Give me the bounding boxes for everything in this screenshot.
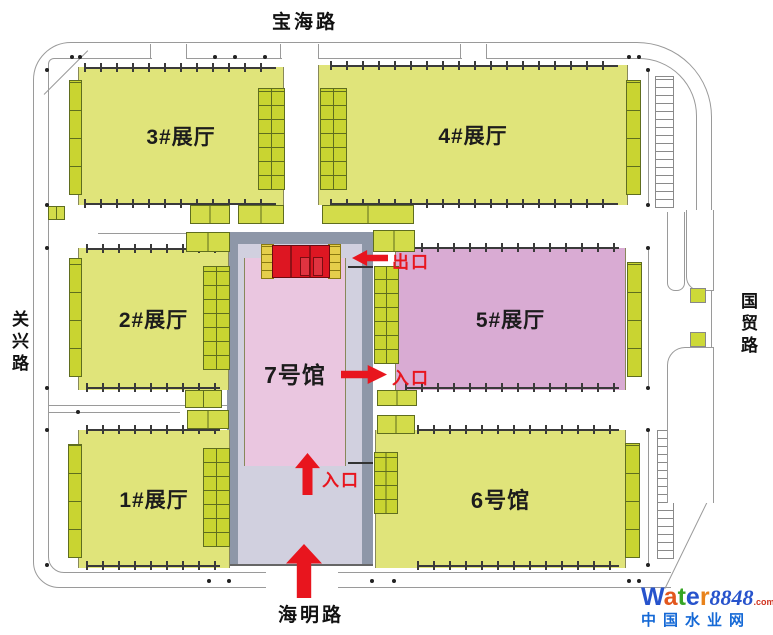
dock-strip xyxy=(626,80,641,195)
road-stub xyxy=(460,44,461,59)
road-junction-dot xyxy=(45,428,49,432)
dock-strip xyxy=(68,444,82,558)
road-label-bottom: 海明路 xyxy=(278,600,344,627)
road-stub xyxy=(318,44,319,59)
wall-ticks xyxy=(84,63,276,72)
hall-label: 1#展厅 xyxy=(119,484,188,514)
road-junction-dot xyxy=(646,203,650,207)
dock-strip xyxy=(69,80,82,195)
road-junction-dot xyxy=(45,246,49,250)
dock-cluster xyxy=(374,266,399,364)
wall-ticks xyxy=(86,561,220,570)
road-junction-dot xyxy=(213,55,217,59)
dock-cluster xyxy=(203,448,230,547)
watermark-letter: r xyxy=(700,583,710,611)
dock-tab xyxy=(185,390,222,408)
gate-block xyxy=(690,288,706,303)
road-junction-dot xyxy=(233,55,237,59)
side-road xyxy=(667,212,685,291)
dock-tab xyxy=(322,205,414,224)
road-junction-dot xyxy=(78,55,82,59)
dock-tab xyxy=(186,232,230,252)
watermark-brand: Water8848.com xyxy=(641,585,772,610)
hall-6: 6号馆 xyxy=(375,430,626,568)
road-junction-dot xyxy=(45,386,49,390)
road-junction-dot xyxy=(370,579,374,583)
road-junction-dot xyxy=(646,563,650,567)
dock-tab xyxy=(377,390,417,406)
stage-door xyxy=(300,257,310,276)
watermark-letter: e xyxy=(686,583,700,611)
road-junction-dot xyxy=(45,563,49,567)
road-junction-dot xyxy=(637,55,641,59)
hall-label: 4#展厅 xyxy=(438,120,507,150)
road-junction-dot xyxy=(207,579,211,583)
exit-label: 出口 xyxy=(392,248,430,273)
dimension-line xyxy=(48,412,180,413)
hall-label: 5#展厅 xyxy=(476,304,545,334)
road-label-right: 国贸路 xyxy=(735,292,760,358)
watermark-number: 8848 xyxy=(710,585,754,610)
road-gap xyxy=(282,52,318,64)
dock-tab xyxy=(377,415,415,434)
road-junction-dot xyxy=(627,579,631,583)
side-road xyxy=(667,347,714,503)
dimension-line xyxy=(648,430,649,564)
wall-ticks xyxy=(405,243,619,252)
dimension-line xyxy=(648,248,649,387)
bracket-line xyxy=(348,266,373,268)
road-junction-dot xyxy=(392,579,396,583)
dock-tab xyxy=(187,410,229,429)
watermark-subtitle: 中国水业网 xyxy=(641,613,772,628)
dock-tab xyxy=(48,206,65,220)
road-junction-dot xyxy=(646,386,650,390)
wall-ticks xyxy=(330,61,618,70)
hall-3: 3#展厅 xyxy=(78,67,284,205)
hall-7: 7号馆 xyxy=(244,258,346,466)
road-label-left: 关兴路 xyxy=(6,310,31,376)
entrance-label-bottom: 入口 xyxy=(322,466,360,491)
road-stub xyxy=(150,44,151,59)
dock-cluster xyxy=(258,88,285,190)
dock-strip xyxy=(69,258,82,377)
watermark-letter: t xyxy=(678,583,686,611)
stage-red-block xyxy=(272,245,330,278)
dock-strip xyxy=(627,262,642,377)
dock-cluster xyxy=(320,88,347,190)
wall-ticks xyxy=(417,425,619,434)
road-gap xyxy=(689,303,701,333)
stage-divider xyxy=(290,246,292,277)
bracket-line xyxy=(348,462,373,464)
dimension-line xyxy=(648,70,649,205)
hall-4: 4#展厅 xyxy=(318,65,628,205)
corner-mask xyxy=(671,502,715,590)
dock-tab xyxy=(238,205,284,224)
gate-block xyxy=(690,332,706,347)
hall-label: 7号馆 xyxy=(264,356,326,390)
road-junction-dot xyxy=(627,55,631,59)
road-junction-dot xyxy=(76,410,80,414)
dock-cluster xyxy=(203,266,230,370)
road-junction-dot xyxy=(263,55,267,59)
road-junction-dot xyxy=(227,579,231,583)
dock-tab xyxy=(190,205,230,224)
road-label-top: 宝海路 xyxy=(272,7,338,34)
road-junction-dot xyxy=(45,203,49,207)
road-junction-dot xyxy=(646,68,650,72)
hall-label: 6号馆 xyxy=(471,483,530,515)
road-stub xyxy=(280,44,281,59)
wall-ticks xyxy=(417,561,619,570)
parking-ladder xyxy=(655,76,674,208)
wall-ticks xyxy=(405,383,619,392)
road-stub xyxy=(186,44,187,59)
watermark: Water8848.com 中国水业网 xyxy=(641,585,772,628)
road-junction-dot xyxy=(70,55,74,59)
road-junction-dot xyxy=(646,246,650,250)
watermark-tld: .com xyxy=(754,597,773,607)
dock-strip xyxy=(625,443,640,558)
watermark-letter: W xyxy=(641,583,664,611)
road-stub xyxy=(486,44,487,59)
watermark-letter: a xyxy=(664,583,678,611)
exhibition-center-map: 7号馆 3#展厅 4#展厅 2#展厅 5#展厅 1#展厅 6号馆 xyxy=(0,0,773,635)
stage-door xyxy=(313,257,323,276)
road-junction-dot xyxy=(646,428,650,432)
hall-label: 2#展厅 xyxy=(119,304,188,334)
entrance-label-mid: 入口 xyxy=(392,364,430,389)
dock-cluster xyxy=(374,452,398,514)
hall-label: 3#展厅 xyxy=(146,121,215,151)
road-junction-dot xyxy=(45,68,49,72)
side-road xyxy=(686,210,714,291)
